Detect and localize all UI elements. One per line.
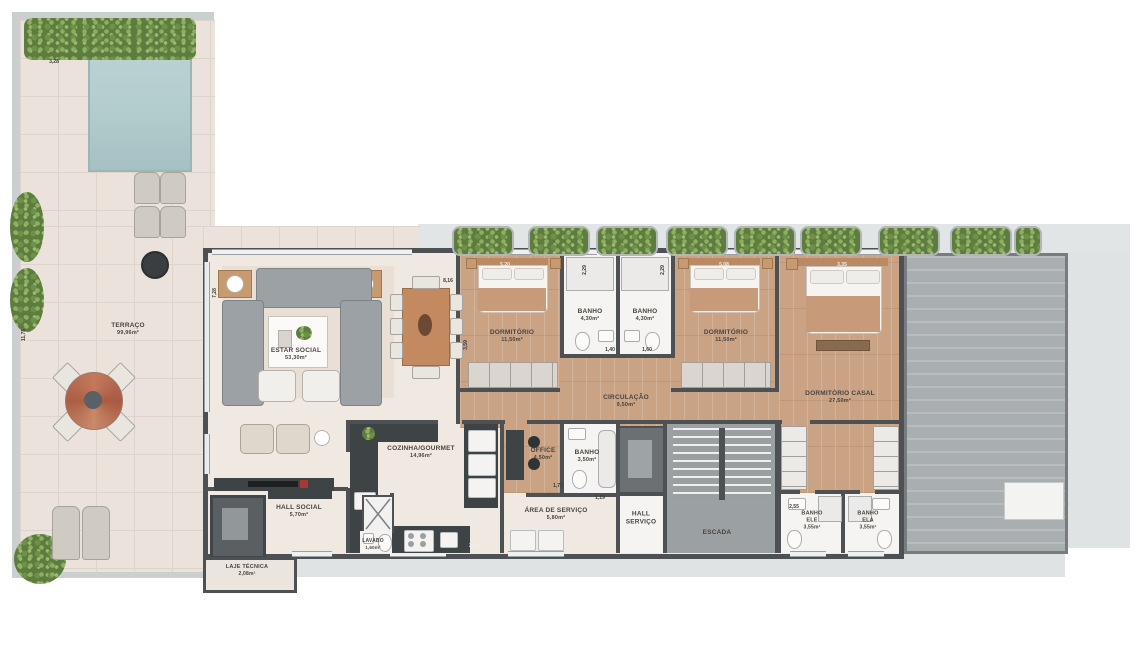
wardrobe (681, 362, 771, 388)
bathtub (598, 430, 616, 488)
planter-hedge (878, 226, 940, 256)
lounge-chair (276, 424, 310, 454)
dining-chair (450, 342, 463, 359)
planter-hedge (950, 226, 1012, 256)
planter-hedge (528, 226, 590, 256)
wall (616, 253, 620, 358)
window (848, 551, 884, 557)
wall (616, 492, 667, 496)
room-label-areaservico: ÁREA DE SERVIÇO5,80m² (525, 507, 588, 523)
room-label-circulacao: CIRCULAÇÃO9,50m² (603, 394, 649, 410)
plant-left-1 (10, 192, 44, 262)
floor-plan: TERRAÇO99,96m² ESTAR SOCIAL53,30m² DORMI… (0, 0, 1146, 650)
armchair (258, 370, 296, 402)
pillow (726, 268, 756, 280)
room-label-banho1: BANHO4,30m² (578, 308, 603, 324)
room-label-cozinha: COZINHA/GOURMET14,96m² (387, 445, 455, 461)
pillow (810, 270, 844, 284)
room-label-hallsocial: HALL SOCIAL5,70m² (276, 504, 322, 520)
closet-wardrobe-left (781, 426, 807, 490)
dryer (538, 530, 564, 551)
dining-chair (390, 342, 403, 359)
wall (560, 354, 675, 358)
planter-hedge (596, 226, 658, 256)
pillow (482, 268, 512, 280)
sun-lounger (52, 506, 80, 560)
sofa-right (340, 300, 382, 406)
armchair (302, 370, 340, 402)
table-lamp (226, 275, 244, 293)
dimension-label: 7,28 (212, 288, 218, 298)
planter-hedge (800, 226, 862, 256)
blanket (690, 288, 758, 311)
toilet (787, 530, 802, 549)
office-chair (528, 436, 540, 448)
fire-pit (141, 251, 169, 279)
room-label-banho3: BANHO3,50m² (575, 449, 600, 465)
wall (460, 388, 560, 392)
entry-door (292, 551, 332, 557)
sink (568, 428, 586, 440)
dimension-label: 2,29 (660, 265, 666, 275)
bed-bench (816, 340, 870, 351)
coffee-table-plant (296, 326, 312, 340)
window (508, 551, 564, 557)
island-appliance (468, 430, 496, 452)
wall (616, 424, 620, 553)
burner (420, 533, 426, 539)
dimension-label: 3,59 (463, 340, 469, 350)
wall (779, 490, 800, 494)
dining-chair (450, 294, 463, 311)
wall (875, 490, 899, 494)
sun-lounger (134, 206, 160, 238)
dimension-label: 11,75 (21, 329, 27, 341)
room-label-banhoela: BANHOELA3,55m² (857, 511, 878, 532)
roof-hatch (1004, 482, 1064, 520)
burner (420, 541, 426, 547)
planter-hedge (734, 226, 796, 256)
wall (456, 253, 460, 424)
wall (775, 253, 779, 392)
island-appliance (468, 478, 496, 498)
dining-chair (450, 318, 463, 335)
shower (566, 257, 614, 291)
sink (598, 330, 614, 342)
planter-hedge (666, 226, 728, 256)
nightstand (466, 258, 477, 269)
dining-chair (390, 318, 403, 335)
sink (872, 498, 890, 510)
hall-console (268, 490, 332, 499)
toilet (877, 530, 892, 549)
elevator-x-icon (364, 497, 392, 531)
room-label-office: OFFICE4,50m² (530, 447, 555, 463)
blanket (478, 288, 546, 311)
window (790, 551, 826, 557)
pillow (694, 268, 724, 280)
lounge-chair (240, 424, 274, 454)
wall (500, 424, 504, 553)
dining-chair (390, 294, 403, 311)
window (212, 249, 412, 255)
room-label-laje: LAJE TÉCNICA2,08m² (226, 564, 268, 578)
burner (408, 533, 414, 539)
stair-center-rail (719, 428, 725, 500)
nightstand (678, 258, 689, 269)
oven (440, 532, 458, 548)
nightstand (786, 258, 798, 270)
room-label-banhoele: BANHOELE3,55m² (801, 511, 822, 532)
wall (671, 388, 779, 392)
sink (624, 330, 640, 342)
wall (810, 420, 899, 424)
room-label-banho2: BANHO4,30m² (633, 308, 658, 324)
wall (815, 490, 860, 494)
dining-chair (412, 276, 440, 289)
dimension-label: 8,16 (443, 278, 453, 284)
dimension-label: 2,55 (789, 504, 799, 510)
terrace-glass-door (204, 434, 210, 474)
dimension-label: 2,60 (469, 543, 479, 549)
nightstand (762, 258, 773, 269)
terrace-glass-door (204, 262, 210, 412)
wall (671, 253, 675, 358)
bed-headboard (476, 258, 548, 265)
dimension-label: 3,35 (837, 262, 847, 268)
hedge-above-pool (24, 18, 196, 60)
planter-hedge (1014, 226, 1042, 256)
dimension-label: 1,19 (595, 495, 605, 501)
office-desk (506, 430, 524, 480)
island-appliance (468, 454, 496, 476)
side-table-small (314, 430, 330, 446)
dimension-label: 3,28 (49, 59, 59, 65)
sun-lounger (160, 172, 186, 204)
coffee-table-book (278, 330, 292, 348)
sun-lounger (134, 172, 160, 204)
toilet (572, 470, 587, 489)
room-label-estar: ESTAR SOCIAL53,30m² (271, 347, 321, 363)
wall (663, 424, 667, 553)
social-elevator (362, 495, 394, 533)
dimension-label: 1,40 (605, 347, 615, 353)
dining-centerpiece (418, 314, 432, 336)
plant-left-2 (10, 268, 44, 332)
console-decor (300, 480, 308, 488)
burner (408, 541, 414, 547)
room-label-dorm1: DORMITÓRIO11,50m² (490, 329, 534, 345)
room-label-dorm2: DORMITÓRIO11,50m² (704, 329, 748, 345)
kitchen-plant (362, 427, 375, 440)
nightstand (550, 258, 561, 269)
tv (248, 481, 298, 487)
dimension-label: 1,60 (642, 347, 652, 353)
surround-right-strip (1062, 252, 1130, 548)
dining-chair (412, 366, 440, 379)
dimension-label: 1,77 (553, 483, 563, 489)
terrace-table-center (84, 391, 102, 409)
dimension-label: 5,20 (500, 262, 510, 268)
blanket (806, 296, 880, 332)
sun-lounger (82, 506, 110, 560)
sun-lounger (160, 206, 186, 238)
closet-wardrobe-right (873, 426, 899, 490)
service-elevator-cab (628, 440, 652, 478)
wall (527, 420, 782, 424)
pillow (846, 270, 880, 284)
toilet (575, 332, 590, 351)
room-label-hallservico: HALLSERVIÇO (626, 511, 657, 528)
room-label-terraco: TERRAÇO99,96m² (111, 322, 145, 338)
dimension-label: 5,08 (719, 262, 729, 268)
pillow (514, 268, 544, 280)
room-label-escada: ESCADA (703, 529, 732, 537)
wardrobe (468, 362, 558, 388)
room-label-lavabo: LAVABO1,60m² (362, 538, 384, 550)
dimension-label: 2,29 (582, 265, 588, 275)
room-label-casal: DORMITÓRIO CASAL27,50m² (805, 390, 875, 406)
washer (510, 530, 536, 551)
planter-hedge (452, 226, 514, 256)
private-elevator-cab (222, 508, 248, 540)
